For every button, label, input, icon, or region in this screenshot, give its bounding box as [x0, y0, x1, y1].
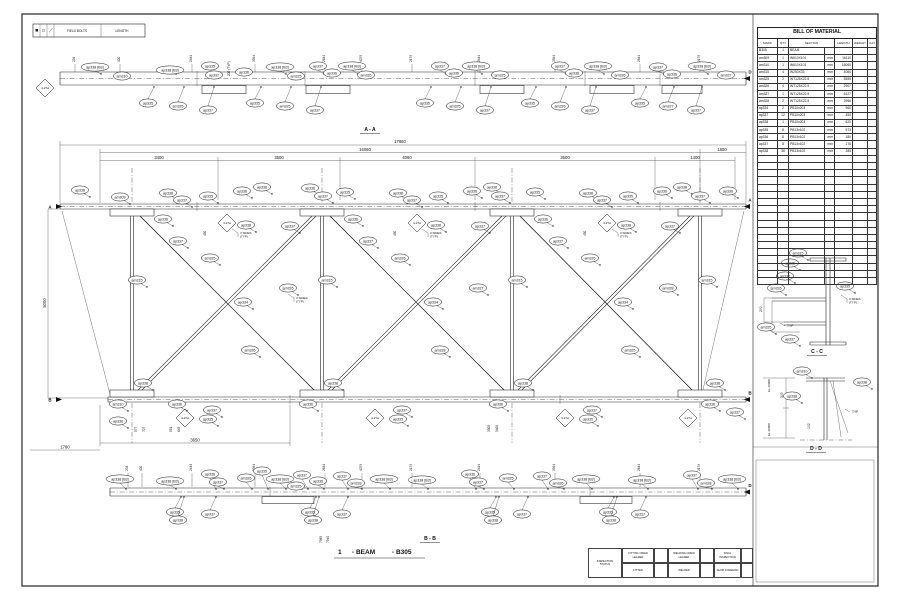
callout-bubble: ap337 [281, 222, 300, 234]
bom-empty-cell [825, 227, 835, 234]
bom-empty-cell [825, 191, 835, 198]
view-label-dd: D - D [810, 446, 822, 452]
bom-empty-cell [868, 213, 877, 220]
bom-empty-cell [853, 227, 868, 234]
bom-empty-cell [825, 242, 835, 249]
callout-bubble: ap338 [673, 183, 692, 195]
callout-label: ap334 [238, 300, 248, 304]
tick-dim: 450 [203, 230, 207, 236]
bom-row: am3101W610X101mm16060 [758, 62, 877, 69]
bom-cell-mark: am309 [758, 55, 778, 62]
bom-empty-cell [835, 206, 853, 213]
bom-empty-cell [868, 191, 877, 198]
bom-empty-cell [868, 177, 877, 184]
bom-empty-cell [835, 163, 853, 170]
bom-empty-cell [778, 155, 789, 162]
callout-label: ap338 [677, 185, 687, 189]
bom-empty-cell [868, 198, 877, 205]
callout-label: ap336 [465, 472, 475, 476]
callout-label: ap337 [687, 473, 697, 477]
callout-label: am326 [771, 286, 782, 290]
bolt-note: 4-27ø [181, 416, 189, 420]
callout-label: am328 [701, 481, 712, 485]
bom-cell-weight [853, 55, 868, 62]
callout-bubble: am309 [111, 193, 130, 205]
bom-empty-cell [778, 170, 789, 177]
bom-empty-row [758, 191, 877, 198]
bom-empty-cell [868, 184, 877, 191]
hole-symbol-icon [42, 29, 45, 32]
tick-dim: 2444 [189, 464, 193, 487]
callout-label: ap337 [310, 108, 320, 112]
bom-cell-section: WT125X22.5 [789, 83, 825, 90]
callout-bubble: ap335 [199, 192, 218, 204]
tb-fitting-crew: FITTING CREW LEADER [622, 548, 654, 563]
bolt-diamond: 4-27ø [218, 214, 236, 232]
bom-cell-unit: mm [825, 83, 835, 90]
callout-bubble: am325 [276, 86, 293, 110]
bom-empty-cell [835, 220, 853, 227]
callout-label: ap335 [143, 101, 153, 105]
dim-seg-4: 3500 [560, 155, 570, 160]
callout-bubble: am325 [169, 86, 186, 110]
bom-empty-cell [778, 184, 789, 191]
callout-label: ap337 [473, 480, 483, 484]
callout-label: am310 [797, 369, 808, 373]
bom-empty-cell [758, 198, 778, 205]
bom-empty-cell [789, 263, 825, 270]
callout-label: am326 [245, 348, 256, 352]
callout-label: ap337 [555, 64, 565, 68]
dim-bottom-left: 1780 [60, 445, 70, 450]
bom-empty-row [758, 163, 877, 170]
callout-label: ap337 [495, 194, 505, 198]
bom-empty-cell [835, 184, 853, 191]
callout-label: am325 [761, 325, 772, 329]
bom-empty-cell [868, 263, 877, 270]
tb-fitter: FITTER [622, 563, 654, 578]
tb-final-label: FINAL INSPECTION [719, 552, 735, 558]
bom-cell-mark: am325 [758, 76, 778, 83]
tick-dim-label: 2444 [189, 464, 193, 471]
bom-empty-cell [758, 170, 778, 177]
bolt-diamond: 4-27ø [679, 409, 697, 427]
bom-empty-cell [758, 155, 778, 162]
callout-label: ap338 [606, 518, 616, 522]
bom-cell-section: PB10x203 [789, 119, 825, 126]
callout-label: ap338 [241, 223, 251, 227]
callout-label: ap336 [569, 71, 579, 75]
callout-label: ap336 [313, 479, 323, 483]
callout-label: ap336 [348, 217, 358, 221]
tick-dim: 3305 [487, 425, 491, 432]
callout-label: am326 [241, 476, 252, 480]
callout-label: ap338 [787, 394, 797, 398]
callout-bubble: ap338 [B3] [156, 66, 184, 75]
bom-cell-length: 620 [835, 119, 853, 126]
callout-label: ap338 [B3] [271, 65, 288, 69]
callout-label: ap338 [B3] [86, 65, 103, 69]
typ-note: TYP [845, 409, 858, 414]
bom-cell-section: WT125X22.5 [789, 91, 825, 98]
bolt-diamond: 4-27ø [598, 214, 616, 232]
callout-label: ap335 [203, 417, 213, 421]
callout-label: ap335 [603, 510, 613, 514]
bom-empty-cell [835, 270, 853, 277]
bom-header-row: MARK QTY SECTION LENGTH WEIGHT CAT [758, 39, 877, 48]
bom-cell-unit: mm [825, 148, 835, 155]
bom-cell-qty: 8 [778, 141, 789, 148]
tick-dim-label: 2644 [637, 464, 641, 471]
bom-empty-cell [825, 278, 835, 285]
bom-cell-unit: mm [825, 62, 835, 69]
callout-bubble: ap335 [246, 86, 263, 107]
callout-label: am328 [663, 286, 674, 290]
bom-row: ap3381PB10x203mm620 [758, 119, 877, 126]
callout-label: ap337 [553, 239, 563, 243]
callout-bubble: am325 [201, 254, 220, 266]
callout-bubble: ap337 [169, 237, 188, 249]
bom-empty-row [758, 256, 877, 263]
bom-cell-weight [853, 141, 868, 148]
bom-empty-cell [853, 177, 868, 184]
bom-cell-weight [853, 148, 868, 155]
callout-label: ap335 [340, 190, 350, 194]
bom-cell-cat [868, 91, 877, 98]
callout-label: am325 [291, 484, 302, 488]
callout-label: ap338 [B3] [271, 477, 288, 481]
tick-dim-label: 450 [203, 230, 207, 236]
bom-empty-row [758, 263, 877, 270]
callout-label: ap338 [431, 223, 441, 227]
bom-empty-cell [758, 278, 778, 285]
bom-empty-cell [789, 227, 825, 234]
view-label-bb: B - B [424, 536, 436, 542]
bom-empty-cell [758, 249, 778, 256]
callout-label: am325 [450, 104, 461, 108]
tick-dim-label: 4079 [359, 55, 363, 62]
callout-label: am325 [495, 73, 506, 77]
bom-cell-mark: am310 [758, 62, 778, 69]
callout-bubble: ap337 [333, 472, 350, 490]
bom-empty-cell [868, 278, 877, 285]
bom-cell-mark: ap338 [758, 148, 778, 155]
callout-bubble: ap337 [533, 472, 550, 490]
callout-bubble: ap337 [173, 196, 192, 208]
tick-dim-label: 551 [169, 426, 173, 432]
bolt-diamond: 4-27ø [408, 214, 426, 232]
bom-empty-cell [835, 278, 853, 285]
bom-empty-cell [835, 249, 853, 256]
bom-cell-mark: ap338 [758, 119, 778, 126]
callout-label: am315 [132, 278, 143, 282]
bom-cell-unit: mm [825, 98, 835, 105]
callout-label: am326 [615, 73, 626, 77]
callout-label: am328 [351, 481, 362, 485]
callout-label: ap337 [435, 64, 445, 68]
bom-empty-cell [778, 213, 789, 220]
callout-bubble: am315 [508, 276, 527, 288]
bom-row: ap33838PB13x102mm285 [758, 148, 877, 155]
tick-dim-label: 2179 [697, 55, 701, 62]
callout-label: ap335 [485, 510, 495, 514]
title-number: 1 [338, 549, 342, 556]
callout-bubble: ap336 [445, 69, 462, 77]
bom-empty-cell [789, 213, 825, 220]
drawing-sheet: FIELD BOLTS LENGTH A - A 200 (TYP) 17860… [0, 0, 900, 600]
part-callouts: ap338 [B3]am310ap338 [B3]ap335ap337ap336… [71, 62, 872, 524]
bom-cell-section: WT125X22.5 [789, 76, 825, 83]
bom-cell-mark: ap335 [758, 127, 778, 134]
bom-cell-section: PB13x102 [789, 134, 825, 141]
callout-label: ap337 [177, 198, 187, 202]
bom-empty-cell [853, 242, 868, 249]
bom-empty-cell [758, 263, 778, 270]
right-panel-box [756, 460, 874, 582]
bom-empty-cell [778, 270, 789, 277]
bom-empty-cell [778, 249, 789, 256]
callout-bubble: am310 [113, 72, 130, 80]
bom-title: BILL OF MATERIAL [758, 28, 877, 39]
bom-empty-cell [825, 270, 835, 277]
bom-empty-cell [853, 220, 868, 227]
tick-dim-label: 2444 [477, 55, 481, 62]
callout-bubble: am310 [793, 367, 812, 379]
callout-label: ap337 [337, 474, 347, 478]
bom-empty-row [758, 206, 877, 213]
callout-label: am326 [555, 104, 566, 108]
callout-label: ap338 [138, 381, 148, 385]
view-dd: EL.10008 EL.20008 300 102 D - D [763, 378, 852, 453]
bom-empty-row [758, 198, 877, 205]
bom-cell-unit: mm [825, 112, 835, 119]
bom-cell-cat [868, 141, 877, 148]
callout-label: ap334 [618, 300, 628, 304]
bom-empty-cell [868, 242, 877, 249]
dim-bottom-splice: 3650 [190, 438, 200, 443]
tb-inspection-status: INSPECTION STATUS [588, 548, 622, 578]
callout-label: am310 [117, 74, 128, 78]
bom-empty-cell [758, 256, 778, 263]
callout-label: ap335 [393, 417, 403, 421]
callout-bubble: ap337 [491, 192, 510, 204]
callout-label: am325 [503, 476, 514, 480]
bom-cell-weight [853, 91, 868, 98]
bom-header-section: SECTION [789, 39, 835, 48]
bom-empty-cell [868, 155, 877, 162]
callout-bubble: am326 [279, 284, 298, 296]
bom-cell-mark: am326 [758, 83, 778, 90]
bolt-note: 4-27ø [41, 86, 49, 90]
bom-cell-weight [853, 62, 868, 69]
callout-label: ap336 [303, 402, 313, 406]
callout-bubble: ap337 [781, 335, 800, 347]
bom-empty-cell [825, 256, 835, 263]
callout-label: ap337 [407, 198, 417, 202]
bom-empty-cell [868, 170, 877, 177]
tb-fitter-sign [654, 563, 668, 578]
callout-bubble: ap337 [471, 222, 490, 234]
dim-seg-5: 1400 [690, 155, 700, 160]
tb-fitting-leader-label: LEADER [633, 556, 644, 559]
callout-bubble: ap337 [691, 192, 710, 204]
bom-cell-length: 6127 [835, 91, 853, 98]
bom-cell-mark: ap337 [758, 112, 778, 119]
bom-empty-cell [778, 163, 789, 170]
callout-label: am327 [663, 104, 674, 108]
bom-cell-length: 16110 [835, 55, 853, 62]
bom-cell-cat [868, 127, 877, 134]
callout-label: ap337 [313, 64, 323, 68]
callout-label: ap338 [257, 185, 267, 189]
callout-label: ap337 [213, 480, 223, 484]
callout-label: ap337 [537, 474, 547, 478]
bom-cell-section: PB10x203 [789, 105, 825, 112]
bom-empty-cell [853, 270, 868, 277]
callout-bubble: ap336 [168, 400, 187, 412]
section-markers: A B A B D D [48, 70, 752, 495]
tick-dim: 2644 [637, 55, 641, 72]
bom-cell-cat [868, 62, 877, 69]
bom-cell-section: PB13x102 [789, 141, 825, 148]
bolt-diamond: 4-27ø [176, 409, 194, 427]
callout-label: ap338 [583, 191, 593, 195]
bom-empty-cell [789, 242, 825, 249]
bom-empty-cell [789, 198, 825, 205]
callout-label: ap336 [705, 402, 715, 406]
callout-label: ap336 [538, 217, 548, 221]
callout-bubble: ap337 [726, 408, 745, 420]
bom-cell-cat [868, 105, 877, 112]
bom-cell-qty: 8 [778, 127, 789, 134]
callout-label: ap335 [530, 190, 540, 194]
tb-welder: WELDER [668, 563, 700, 578]
bom-cell-unit: mm [825, 141, 835, 148]
tick-dim: 7985 [319, 536, 323, 543]
callout-bubble: ap337 [661, 222, 680, 234]
tick-dim-label: 234 [125, 465, 129, 471]
bom-empty-cell [825, 170, 835, 177]
dimension-ticks: 2344202444339426444079217924443394264421… [72, 55, 701, 543]
callout-label: ap337 [730, 410, 740, 414]
callout-label: ap336 [723, 189, 733, 193]
bom-cell-section: WT125X22.5 [789, 98, 825, 105]
callout-bubble: ap336 [323, 69, 340, 77]
tb-fitting-sign [654, 548, 668, 563]
bom-cell-unit: mm [825, 105, 835, 112]
tick-dim-label: 3394 [252, 55, 256, 62]
bom-cell-weight [853, 119, 868, 126]
callout-label: am315 [512, 278, 523, 282]
bom-cell-weight [853, 98, 868, 105]
bom-cell-length: 573 [835, 127, 853, 134]
bom-empty-cell [853, 278, 868, 285]
callout-label: ap335 [203, 194, 213, 198]
bom-empty-cell [789, 220, 825, 227]
view-elevation: 5000 3650 1780 [30, 168, 746, 450]
bom-empty-cell [758, 184, 778, 191]
bom-empty-cell [758, 213, 778, 220]
bill-of-material: BILL OF MATERIAL MARK QTY SECTION LENGTH… [757, 27, 877, 285]
callout-bubble: ap334 [424, 298, 443, 310]
bom-empty-cell [825, 177, 835, 184]
callout-label: ap338 [857, 380, 867, 384]
bom-empty-row [758, 213, 877, 220]
bom-cell-qty: 8 [778, 134, 789, 141]
bom-empty-row [758, 278, 877, 285]
bom-row: ap33712PB10x203mm450 [758, 112, 877, 119]
bom-empty-cell [868, 206, 877, 213]
callout-bubble: ap337 [403, 196, 422, 208]
bom-cell-qty: 12 [778, 112, 789, 119]
bom-cell-mark: ap337 [758, 141, 778, 148]
callout-label: ap337 [173, 239, 183, 243]
callout-label: ap335 [635, 101, 645, 105]
bolt-note: 4-27ø [371, 416, 379, 420]
bom-cell-qty: 1 [778, 119, 789, 126]
bom-empty-cell [758, 234, 778, 241]
callout-label: ap336 [327, 71, 337, 75]
callout-bubble: ap338 [B3] [408, 476, 436, 490]
bom-cell-length: 180 [835, 134, 853, 141]
bom-cell-mark: am328 [758, 98, 778, 105]
marker-a-right: A [748, 198, 752, 203]
bom-cell-unit [825, 48, 835, 55]
callout-label: ap337 [337, 512, 347, 516]
weld-note: 3 SIDES(TYP) [422, 229, 442, 239]
bom-empty-cell [853, 163, 868, 170]
tick-dim: 234 [72, 56, 76, 72]
callout-label: ap335 [583, 417, 593, 421]
bom-cell-unit: mm [825, 69, 835, 76]
bom-empty-cell [778, 242, 789, 249]
callout-label: ap335 [170, 510, 180, 514]
bolt-diamond: 4-27ø [556, 409, 574, 427]
callout-bubble: am326 [391, 254, 410, 266]
callout-bubble: ap338 [B3] [688, 62, 716, 75]
callout-label: ap337 [695, 194, 705, 198]
callout-bubble: am326 [551, 86, 568, 110]
bom-cell-section: BEAM [789, 48, 825, 55]
bom-cell-weight [853, 76, 868, 83]
bom-empty-cell [789, 191, 825, 198]
tick-dim: 420 [139, 465, 143, 487]
bom-empty-cell [825, 234, 835, 241]
bom-cell-cat [868, 98, 877, 105]
bom-empty-cell [835, 213, 853, 220]
bom-cell-section: W610X101 [789, 62, 825, 69]
bom-cell-unit: mm [825, 76, 835, 83]
tb-fitter-label: FITTER [633, 569, 642, 572]
callout-label: ap337 [475, 224, 485, 228]
callout-bubble: ap336 [719, 187, 738, 199]
bom-cell-length: 450 [835, 112, 853, 119]
callout-label: am325 [280, 104, 291, 108]
callout-label: am326 [553, 481, 564, 485]
bom-empty-cell [778, 234, 789, 241]
bom-cell-weight [853, 105, 868, 112]
marker-d-bb: D [748, 483, 752, 488]
callout-bubble: ap337 [683, 471, 700, 490]
bom-empty-row [758, 184, 877, 191]
bom-cell-cat [868, 55, 877, 62]
tick-dim-label: 3394 [552, 464, 556, 471]
bom-cell-length: 16060 [835, 62, 853, 69]
callout-label: ap338 [B3] [589, 64, 606, 68]
callout-bubble: ap338 [706, 379, 725, 391]
callout-label: ap338 [173, 518, 183, 522]
tb-welding-leader-label: LEADER [679, 556, 690, 559]
